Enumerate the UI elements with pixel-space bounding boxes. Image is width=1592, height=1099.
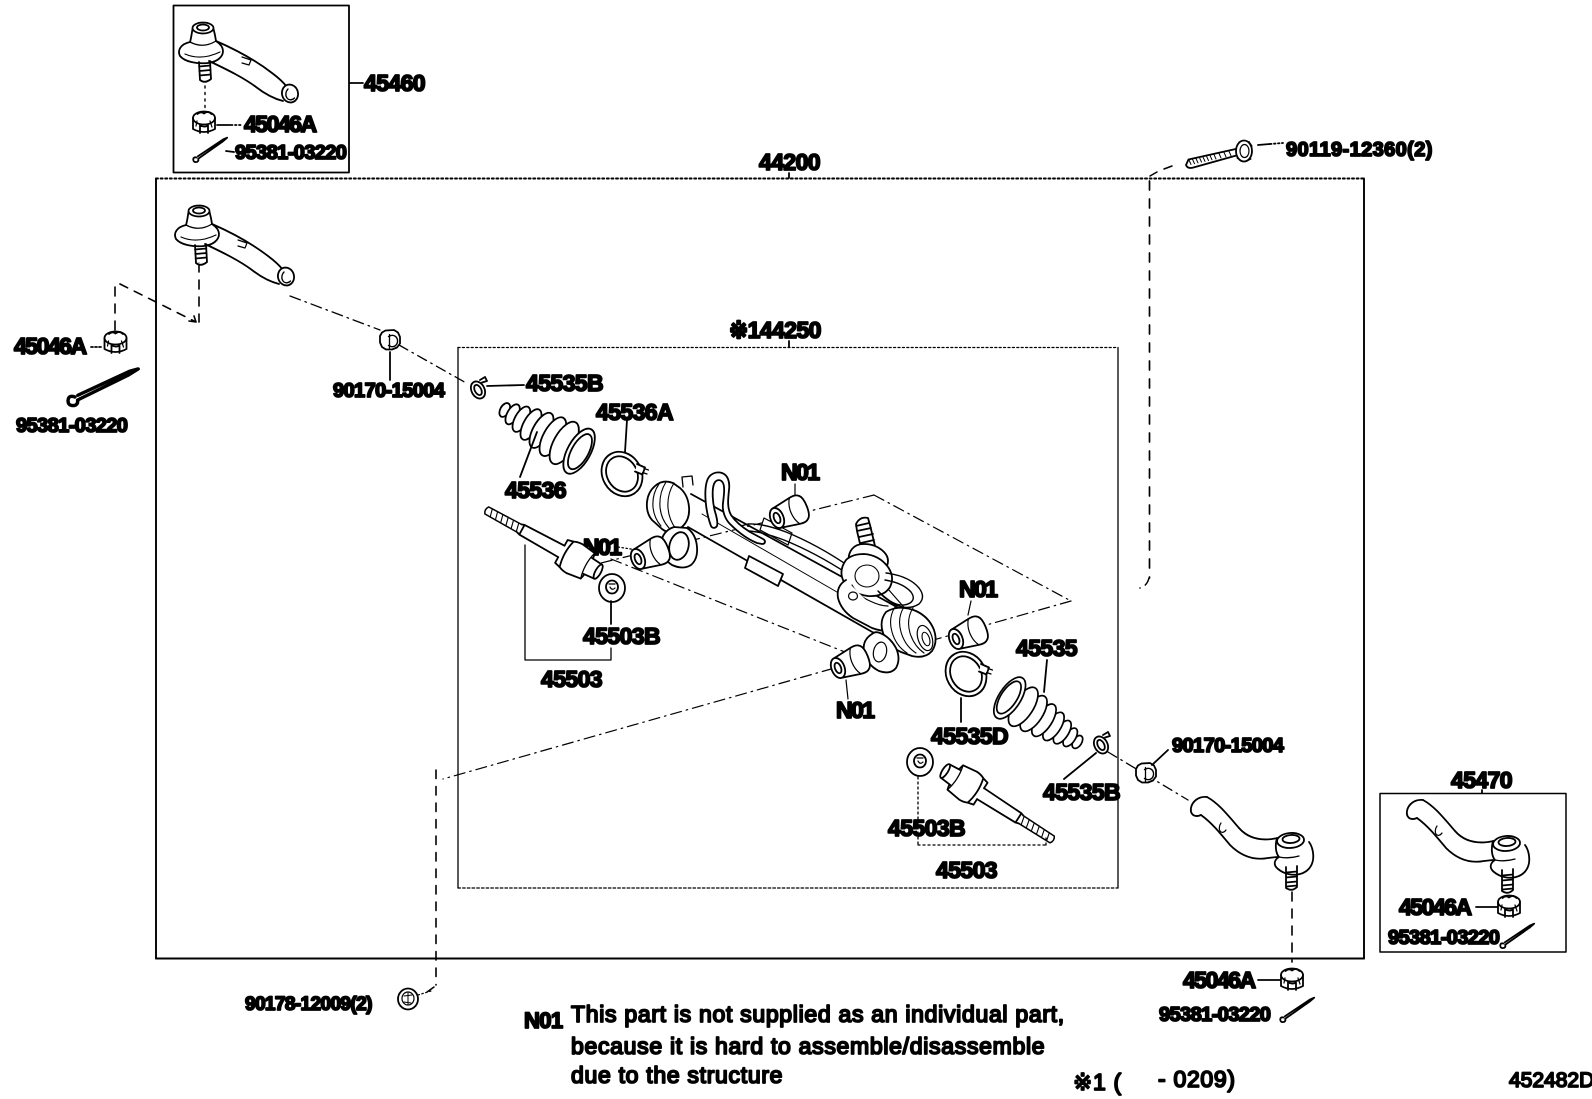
svg-text:45503: 45503	[541, 666, 602, 692]
svg-text:N01: N01	[836, 697, 875, 723]
svg-text:45536A: 45536A	[596, 399, 673, 425]
svg-text:90170-15004: 90170-15004	[333, 380, 446, 402]
svg-text:because it is hard to assemble: because it is hard to assemble/disassemb…	[571, 1033, 1045, 1059]
svg-text:95381-03220: 95381-03220	[1388, 927, 1500, 949]
svg-text:90170-15004: 90170-15004	[1172, 735, 1285, 757]
svg-text:※1 (: ※1 (	[1073, 1069, 1122, 1095]
svg-text:45470: 45470	[1451, 767, 1512, 793]
svg-text:45503B: 45503B	[583, 623, 660, 649]
svg-text:45535D: 45535D	[931, 723, 1008, 749]
svg-text:45046A: 45046A	[1399, 894, 1471, 920]
svg-text:90178-12009(2): 90178-12009(2)	[245, 994, 372, 1015]
svg-text:N01: N01	[524, 1008, 563, 1033]
svg-text:45503: 45503	[936, 857, 997, 883]
svg-text:45460: 45460	[364, 70, 425, 96]
svg-text:45535B: 45535B	[1043, 779, 1120, 805]
svg-text:452482D: 452482D	[1509, 1069, 1592, 1092]
svg-text:N01: N01	[959, 576, 998, 602]
svg-text:※144250: ※144250	[729, 317, 821, 343]
svg-text:- 0209): - 0209)	[1158, 1066, 1236, 1092]
svg-text:95381-03220: 95381-03220	[1159, 1004, 1271, 1026]
svg-text:N01: N01	[781, 459, 820, 485]
svg-text:95381-03220: 95381-03220	[16, 415, 128, 437]
svg-text:44200: 44200	[759, 149, 820, 175]
svg-text:90119-12360(2): 90119-12360(2)	[1286, 139, 1433, 161]
svg-text:This part is not supplied as a: This part is not supplied as an individu…	[571, 1001, 1065, 1027]
svg-text:45503B: 45503B	[888, 815, 965, 841]
svg-text:45535: 45535	[1016, 635, 1078, 661]
svg-text:45046A: 45046A	[1183, 967, 1255, 993]
svg-text:45046A: 45046A	[244, 111, 316, 137]
svg-text:due to the structure: due to the structure	[571, 1062, 783, 1088]
svg-text:45535B: 45535B	[526, 370, 603, 396]
svg-text:45536: 45536	[505, 477, 566, 503]
svg-text:45046A: 45046A	[14, 333, 86, 359]
svg-text:95381-03220: 95381-03220	[235, 142, 347, 164]
